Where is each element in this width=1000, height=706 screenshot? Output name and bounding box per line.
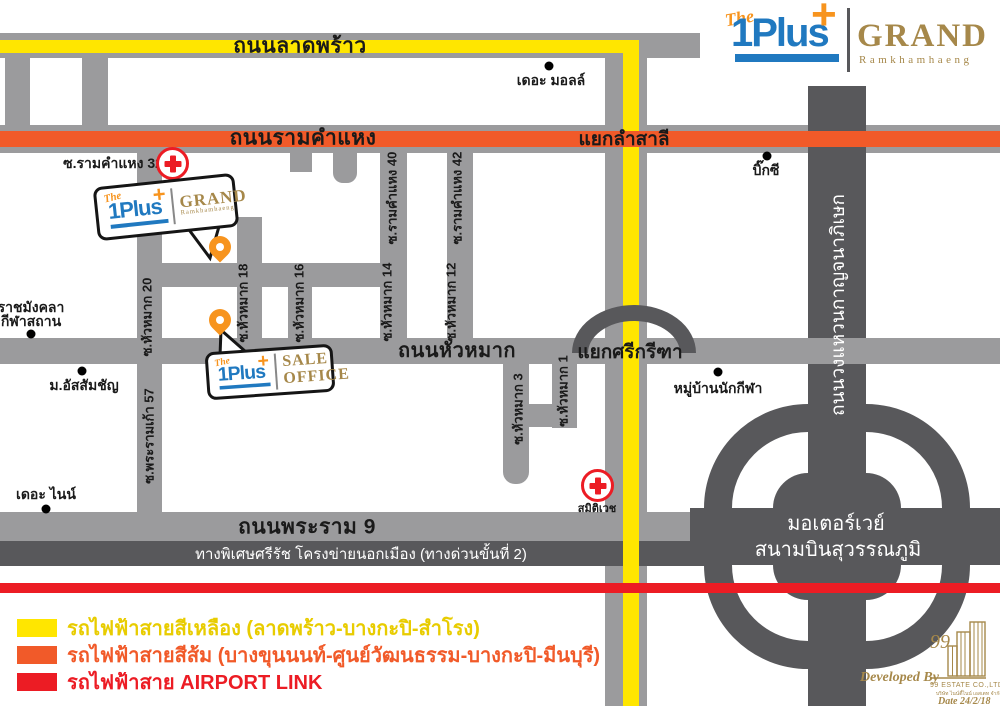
orange-line	[0, 131, 1000, 147]
samitivej-hospital-icon	[581, 469, 614, 502]
label-soi-ramkhamhaeng-40: ซ.รามคำแหง 40	[382, 152, 403, 245]
label-the-mall: เดอะ มอลล์	[517, 70, 586, 92]
the-nine-dot	[42, 505, 51, 514]
label-soi-huamak-14: ซ.หัวหมาก 14	[377, 263, 398, 342]
developer-company-name: 99 ESTATE CO.,LTD	[930, 682, 1000, 689]
label-srikritha-intersection: แยกศรีกรีฑา	[577, 337, 682, 367]
developer-date: Date 24/2/18	[938, 696, 991, 706]
label-soi-huamak-1: ซ.หัวหมาก 1	[553, 355, 574, 426]
svg-text:99: 99	[930, 631, 950, 653]
label-soi-ramkhamhaeng-42: ซ.รามคำแหง 42	[447, 152, 468, 245]
label-samitivej-hospital: สมิติเวช	[578, 499, 617, 517]
grand-bubble-text: GRAND Ramkhamhaeng	[179, 187, 248, 217]
label-expressway: ทางพิเศษศรีรัช โครงข่ายนอกเมือง (ทางด่วน…	[195, 542, 527, 566]
airport-link-swatch	[17, 673, 57, 691]
brand-grand-text: GRAND	[857, 20, 988, 53]
legend-row-airport-link: รถไฟฟ้าสาย AIRPORT LINK	[17, 672, 322, 692]
brand-divider	[847, 8, 850, 72]
label-soi-huamak-12: ซ.หัวหมาก 12	[441, 263, 462, 342]
oneplus-mini-logo: The 1Plus +	[96, 184, 174, 235]
road-stub-soi-36	[333, 152, 357, 183]
ramkhamhaeng-hospital-icon	[156, 147, 189, 180]
header-brand-logo: The 1Plus + GRAND Ramkhamhaeng	[715, 2, 997, 82]
sale-line2: OFFICE	[283, 366, 350, 387]
label-soi-huamak-20: ซ.หัวหมาก 20	[137, 278, 158, 357]
developer-credit: Developed By 99 99 ESTATE CO.,LTD บริษัท…	[852, 612, 997, 704]
sale-office-bubble: The 1Plus + SALE OFFICE	[204, 344, 335, 401]
label-assumption-university: ม.อัสสัมชัญ	[49, 375, 118, 397]
oneplus-plus-icon: +	[257, 349, 270, 373]
label-road-ladprao: ถนนลาดพร้าว	[233, 30, 366, 63]
rajamangala-dot	[27, 330, 36, 339]
brand-grand-subtitle: Ramkhamhaeng	[859, 54, 972, 66]
athletes-village-dot	[714, 368, 723, 377]
label-big-c: บิ๊กซี	[753, 160, 780, 182]
label-soi-huamak-3: ซ.หัวหมาก 3	[508, 373, 529, 444]
label-soi-rama9-57: ซ.พระรามเก้า 57	[139, 388, 160, 484]
label-road-ramkhamhaeng: ถนนรามคำแหง	[230, 122, 377, 155]
label-road-rama9: ถนนพระราม 9	[238, 511, 376, 544]
sale-office-text: SALE OFFICE	[282, 350, 351, 388]
label-motorway-line2: สนามบินสุวรรณภูมิ	[755, 533, 922, 565]
label-lamsali-intersection: แยกลำสาลี	[578, 124, 669, 154]
legend-row-orange-line: รถไฟฟ้าสายสีส้ม (บางขุนนนท์-ศูนย์วัฒนธรร…	[17, 645, 600, 665]
yellow-line-swatch	[17, 619, 57, 637]
road-stub-soi-16-top	[290, 152, 312, 172]
label-soi-huamak-16: ซ.หัวหมาก 16	[289, 264, 310, 343]
airport-link-line	[0, 583, 1000, 593]
label-athletes-village: หมู่บ้านนักกีฬา	[674, 378, 763, 400]
brand-plus-icon: +	[811, 0, 837, 40]
label-the-nine: เดอะ ไนน์	[16, 484, 76, 506]
brand-underline	[735, 54, 839, 62]
project-location-map: ถนนลาดพร้าว ถนนรามคำแหง แยกลำสาลี ถนนหัว…	[0, 0, 1000, 706]
oneplus-plus-icon: +	[151, 181, 167, 208]
road-connector-north	[150, 263, 407, 287]
label-soi-ramkhamhaeng-32: ซ.รามคำแหง 32	[63, 153, 163, 175]
legend-row-yellow-line: รถไฟฟ้าสายสีเหลือง (ลาดพร้าว-บางกะปิ-สำโ…	[17, 618, 480, 638]
99-estate-logo-icon: 99	[928, 618, 988, 680]
legend-airport-link-label: รถไฟฟ้าสาย AIRPORT LINK	[67, 666, 322, 698]
oneplus-mini-logo-sale: The 1Plus +	[208, 352, 276, 395]
orange-line-swatch	[17, 646, 57, 664]
label-road-kanchanaphisek: ถนนวงแหวนกาญจนาภิเษก	[823, 194, 853, 416]
